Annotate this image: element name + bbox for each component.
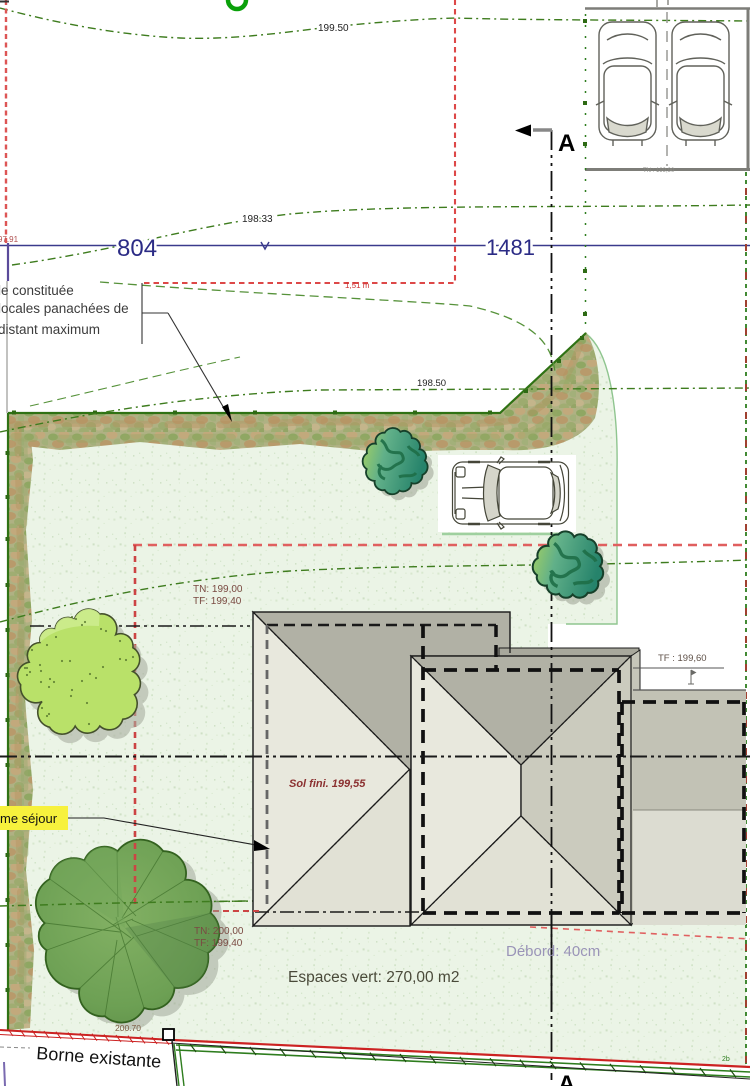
svg-text:97.91: 97.91 xyxy=(0,235,19,244)
svg-text:TN: 199,00: TN: 199,00 xyxy=(193,584,243,595)
svg-text:Espaces vert: 270,00 m2: Espaces vert: 270,00 m2 xyxy=(288,969,459,986)
svg-text:locales panachées de: locales panachées de xyxy=(0,301,129,316)
svg-text:200.70: 200.70 xyxy=(115,1023,141,1033)
svg-text:198.33: 198.33 xyxy=(242,214,273,225)
svg-text:TF: 199,40: TF: 199,40 xyxy=(193,596,242,607)
svg-text:2b: 2b xyxy=(722,1056,730,1063)
svg-text:distant maximum: distant maximum xyxy=(0,322,100,337)
svg-text:me séjour: me séjour xyxy=(0,811,58,826)
svg-text:Débord: 40cm: Débord: 40cm xyxy=(506,943,600,960)
svg-text:TN: 200,00: TN: 200,00 xyxy=(194,926,244,937)
svg-text:A: A xyxy=(558,130,575,157)
svg-text:A: A xyxy=(558,1071,575,1086)
svg-text:804: 804 xyxy=(117,235,157,262)
svg-text:1,51 m: 1,51 m xyxy=(345,281,370,290)
svg-text:198.50: 198.50 xyxy=(417,378,446,389)
svg-text:TF: 199,40: TF: 199,40 xyxy=(194,938,243,949)
svg-text:1481: 1481 xyxy=(486,235,535,260)
svg-text:TN : 199,90: TN : 199,90 xyxy=(643,168,675,174)
svg-text:TF : 199,60: TF : 199,60 xyxy=(658,653,707,664)
svg-text:le constituée: le constituée xyxy=(0,283,74,298)
svg-text:Sol fini. 199,55: Sol fini. 199,55 xyxy=(289,778,366,790)
svg-text:199.50: 199.50 xyxy=(318,23,349,34)
